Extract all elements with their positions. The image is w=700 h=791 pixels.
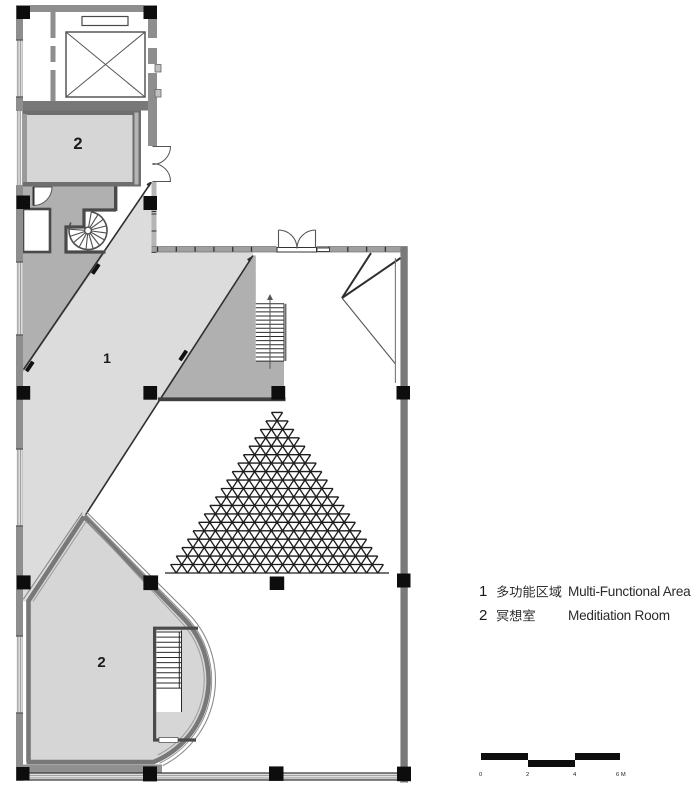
svg-text:6 M: 6 M	[616, 772, 626, 778]
svg-text:0: 0	[479, 772, 482, 778]
svg-text:1: 1	[479, 583, 487, 600]
svg-text:Multi-Functional Area: Multi-Functional Area	[568, 584, 691, 599]
svg-text:2: 2	[526, 772, 529, 778]
svg-text:2: 2	[479, 607, 487, 624]
svg-text:2: 2	[97, 654, 105, 671]
svg-text:Meditiation Room: Meditiation Room	[568, 608, 670, 623]
svg-text:1: 1	[103, 350, 111, 366]
svg-text:2: 2	[73, 135, 82, 153]
